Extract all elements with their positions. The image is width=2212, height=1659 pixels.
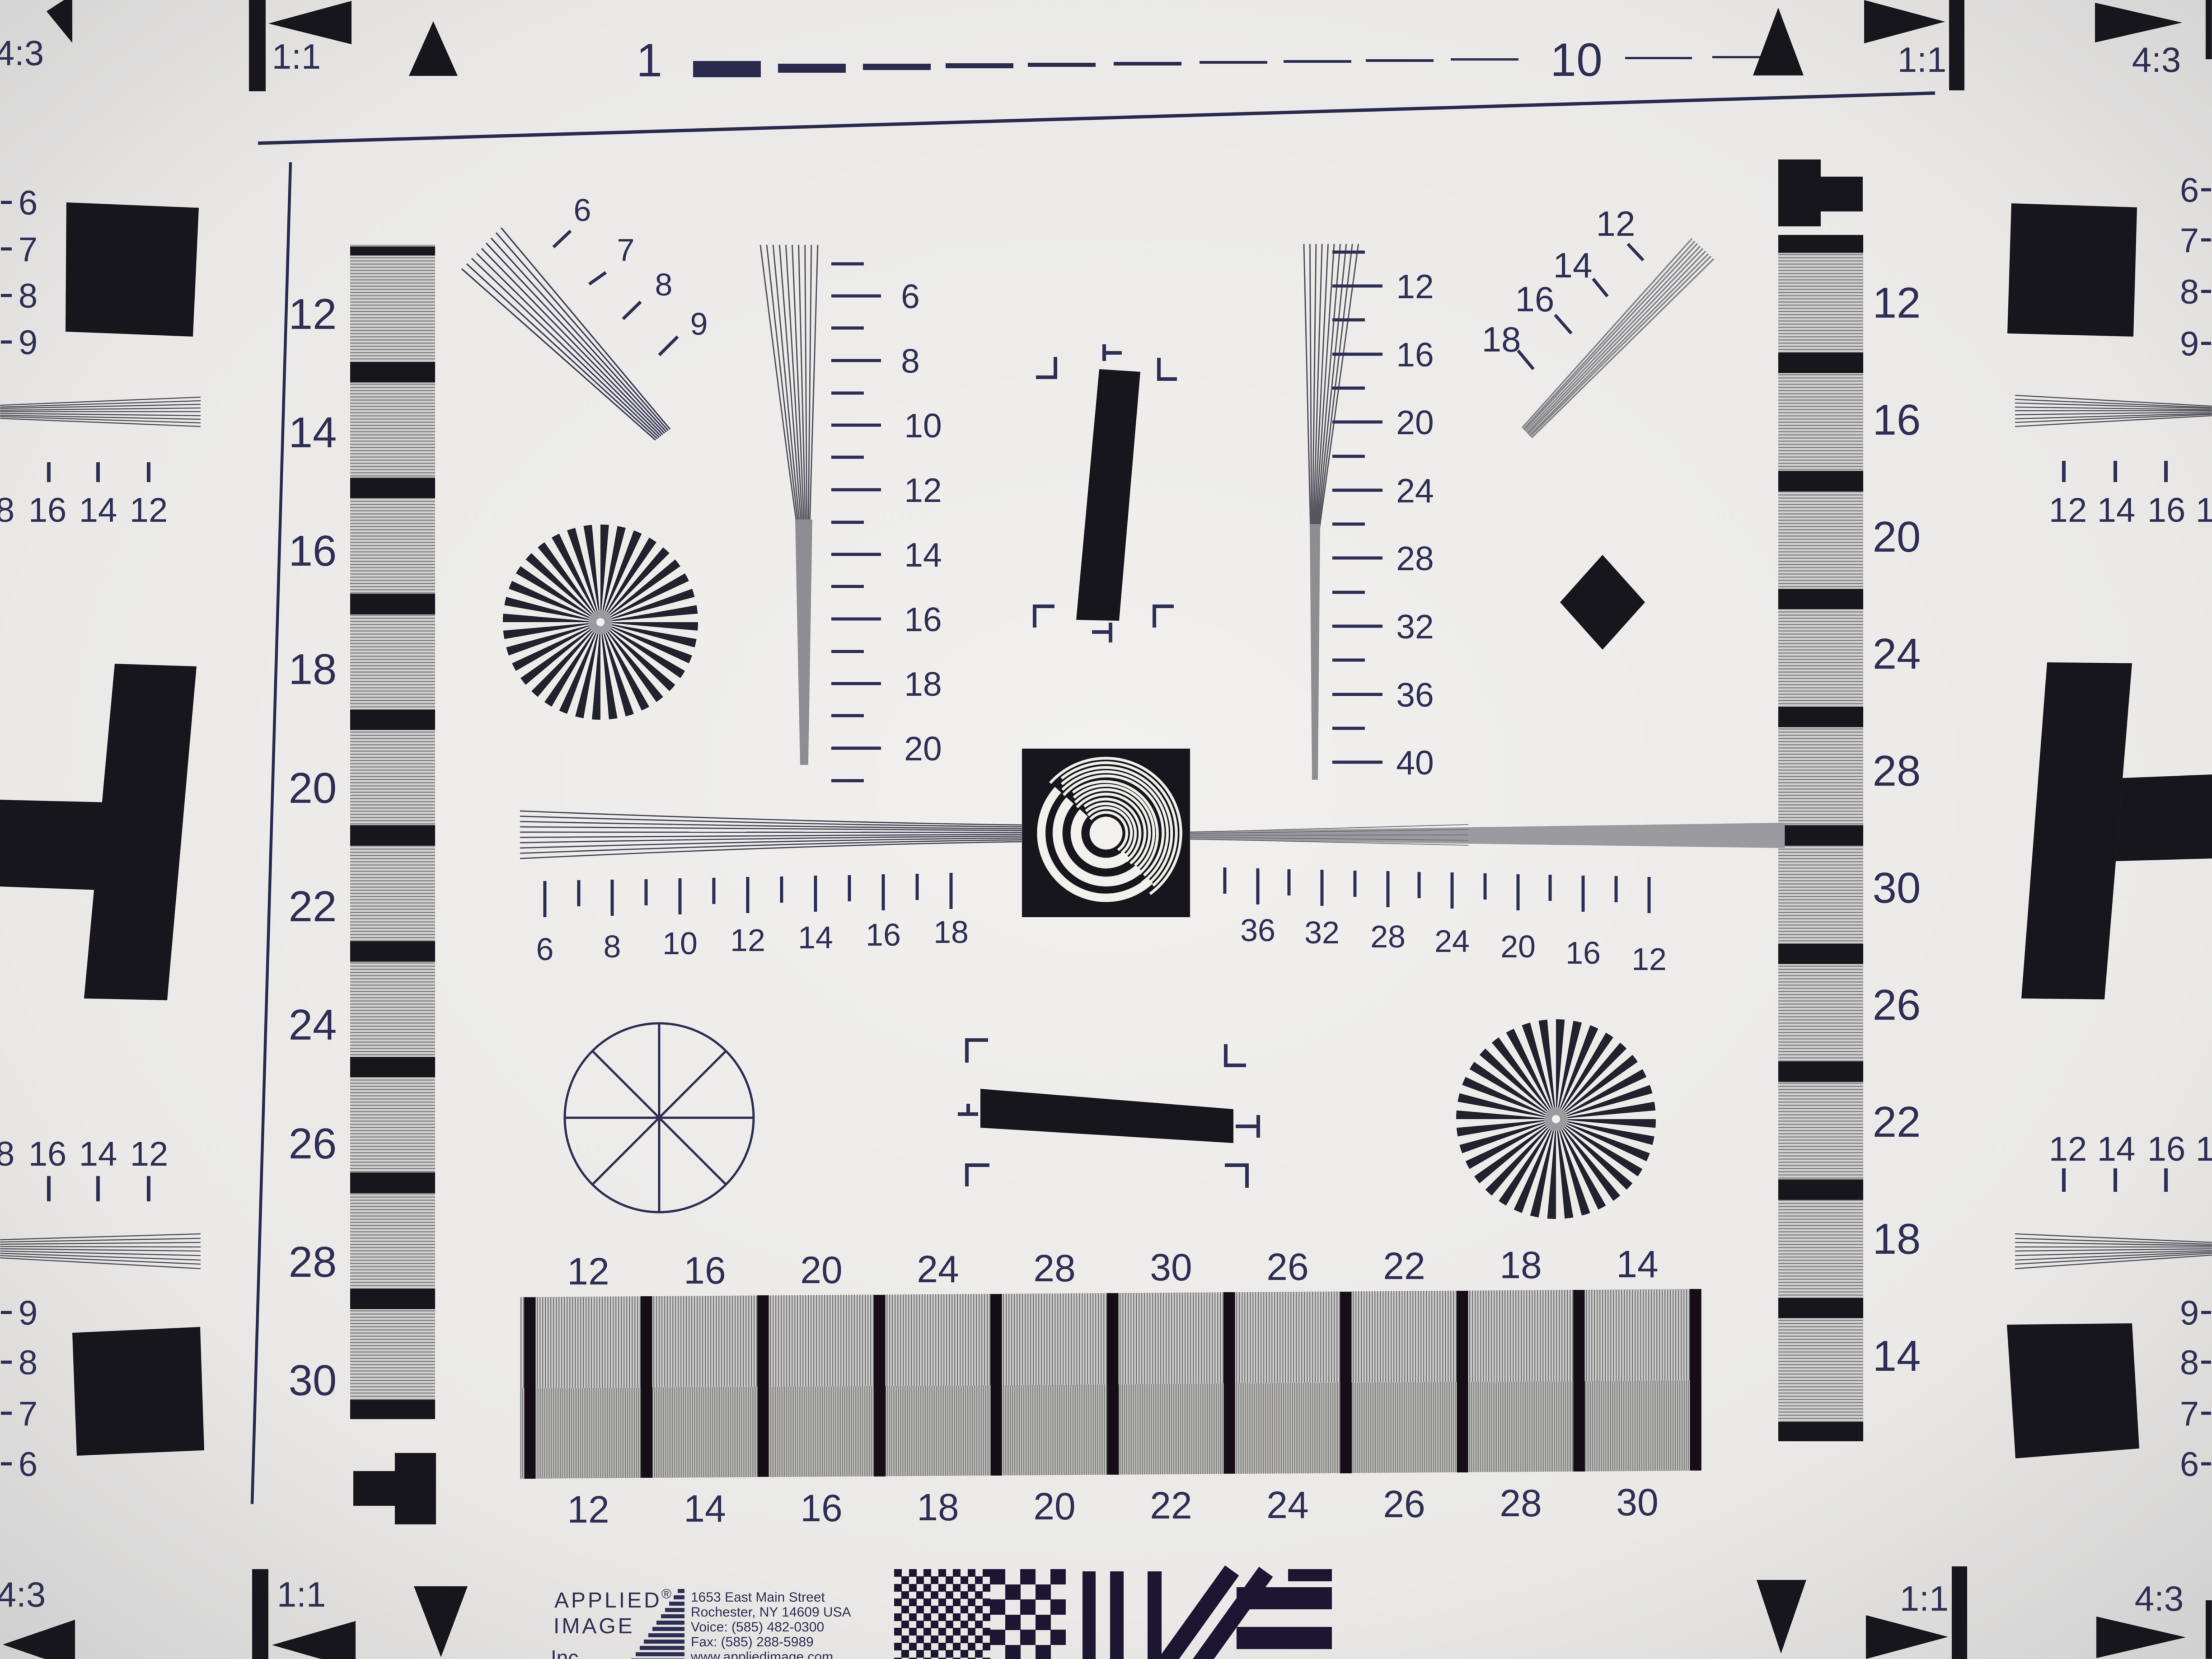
svg-text:36: 36 <box>1396 676 1434 714</box>
svg-text:12: 12 <box>1631 942 1667 977</box>
svg-text:16: 16 <box>1396 336 1434 374</box>
svg-text:22: 22 <box>1150 1484 1192 1527</box>
svg-text:24: 24 <box>1434 923 1470 959</box>
svg-text:28: 28 <box>289 1238 337 1286</box>
svg-text:10: 10 <box>904 407 942 445</box>
svg-text:4:3: 4:3 <box>2135 1579 2184 1618</box>
svg-text:Voice: (585) 482-0300: Voice: (585) 482-0300 <box>691 1620 824 1635</box>
svg-text:14: 14 <box>684 1487 726 1530</box>
svg-text:40: 40 <box>1396 744 1434 782</box>
svg-text:1:1: 1:1 <box>272 37 321 76</box>
svg-text:1653 East Main Street: 1653 East Main Street <box>691 1590 825 1605</box>
svg-text:Rochester, NY 14609 USA: Rochester, NY 14609 USA <box>691 1605 851 1620</box>
svg-text:24: 24 <box>1266 1484 1308 1526</box>
svg-text:16: 16 <box>289 527 337 575</box>
svg-text:18: 18 <box>2196 491 2212 530</box>
svg-text:16: 16 <box>2147 491 2186 530</box>
svg-text:18: 18 <box>0 491 14 530</box>
svg-text:16: 16 <box>28 1135 67 1173</box>
svg-text:14: 14 <box>1616 1243 1658 1285</box>
svg-text:14: 14 <box>289 408 337 457</box>
svg-text:8: 8 <box>2180 1344 2199 1382</box>
svg-text:18: 18 <box>1500 1244 1542 1286</box>
svg-text:9: 9 <box>2180 325 2199 363</box>
svg-text:12: 12 <box>130 491 168 530</box>
svg-text:9: 9 <box>690 306 708 342</box>
svg-text:32: 32 <box>1304 915 1340 950</box>
svg-text:6: 6 <box>901 277 920 315</box>
svg-text:24: 24 <box>1396 472 1434 510</box>
svg-text:12: 12 <box>1396 267 1434 305</box>
svg-text:1:1: 1:1 <box>277 1575 326 1614</box>
svg-text:10: 10 <box>1550 34 1603 86</box>
svg-text:12: 12 <box>1596 204 1636 244</box>
svg-text:7: 7 <box>2180 221 2199 260</box>
svg-text:7: 7 <box>19 230 37 269</box>
svg-text:20: 20 <box>1500 929 1536 964</box>
svg-text:12: 12 <box>730 923 765 958</box>
svg-text:4:3: 4:3 <box>0 1575 46 1614</box>
svg-text:Inc: Inc <box>551 1646 578 1659</box>
svg-text:20: 20 <box>289 764 337 812</box>
svg-text:18: 18 <box>904 665 942 703</box>
svg-text:18: 18 <box>289 645 337 694</box>
svg-text:9: 9 <box>19 323 37 362</box>
svg-text:26: 26 <box>1383 1483 1425 1525</box>
svg-text:16: 16 <box>1565 935 1601 970</box>
svg-text:8: 8 <box>604 929 621 964</box>
svg-text:12: 12 <box>289 290 337 338</box>
svg-text:6: 6 <box>536 932 554 967</box>
svg-text:12: 12 <box>2049 491 2087 530</box>
svg-text:28: 28 <box>1370 919 1406 954</box>
svg-text:4:3: 4:3 <box>0 33 44 73</box>
svg-text:30: 30 <box>1873 864 1921 912</box>
svg-text:10: 10 <box>662 926 698 961</box>
svg-text:16: 16 <box>28 491 67 530</box>
svg-text:22: 22 <box>289 882 337 931</box>
svg-text:7: 7 <box>19 1395 37 1433</box>
svg-text:16: 16 <box>2147 1130 2186 1168</box>
svg-text:9: 9 <box>2180 1294 2199 1332</box>
svg-text:20: 20 <box>800 1249 842 1291</box>
svg-text:18: 18 <box>2196 1130 2212 1168</box>
svg-text:16: 16 <box>1873 396 1921 444</box>
svg-text:20: 20 <box>1873 513 1921 561</box>
svg-text:12: 12 <box>130 1135 169 1173</box>
svg-text:8: 8 <box>19 277 37 315</box>
svg-text:16: 16 <box>866 917 901 952</box>
svg-text:1:1: 1:1 <box>1898 40 1946 80</box>
svg-text:22: 22 <box>1383 1245 1425 1287</box>
svg-text:14: 14 <box>798 920 833 955</box>
svg-text:32: 32 <box>1396 608 1434 646</box>
svg-text:18: 18 <box>0 1135 14 1173</box>
svg-text:1: 1 <box>636 34 662 87</box>
svg-text:APPLIED: APPLIED <box>554 1589 662 1612</box>
svg-text:30: 30 <box>1616 1481 1658 1523</box>
svg-text:14: 14 <box>2097 1130 2136 1168</box>
svg-text:www.appliedimage.com: www.appliedimage.com <box>690 1650 833 1659</box>
svg-text:14: 14 <box>79 491 117 530</box>
svg-text:6: 6 <box>19 1445 37 1484</box>
svg-text:18: 18 <box>917 1486 959 1528</box>
svg-text:14: 14 <box>904 536 942 574</box>
svg-text:7: 7 <box>2180 1395 2199 1433</box>
svg-text:6: 6 <box>19 184 37 222</box>
svg-text:8: 8 <box>2180 273 2199 311</box>
svg-text:12: 12 <box>567 1488 609 1531</box>
svg-text:28: 28 <box>1500 1482 1542 1524</box>
svg-text:20: 20 <box>1033 1485 1075 1528</box>
svg-text:9: 9 <box>19 1294 37 1332</box>
svg-text:20: 20 <box>1396 403 1434 441</box>
svg-text:®: ® <box>661 1587 671 1602</box>
svg-text:8: 8 <box>901 342 920 380</box>
svg-text:30: 30 <box>289 1356 337 1405</box>
svg-text:30: 30 <box>1150 1246 1192 1289</box>
svg-text:20: 20 <box>904 730 942 768</box>
svg-text:18: 18 <box>1873 1215 1921 1263</box>
svg-text:14: 14 <box>2097 491 2136 530</box>
svg-text:26: 26 <box>289 1120 337 1168</box>
svg-text:24: 24 <box>1873 630 1921 678</box>
svg-text:28: 28 <box>1396 539 1434 577</box>
svg-text:16: 16 <box>1515 279 1555 319</box>
svg-text:12: 12 <box>567 1250 609 1293</box>
svg-text:Fax: (585) 288-5989: Fax: (585) 288-5989 <box>691 1635 814 1650</box>
svg-text:26: 26 <box>1266 1246 1308 1288</box>
svg-text:14: 14 <box>1553 245 1593 285</box>
svg-text:6: 6 <box>2180 171 2199 210</box>
svg-text:18: 18 <box>933 914 969 950</box>
svg-text:12: 12 <box>904 471 942 509</box>
svg-text:26: 26 <box>1873 981 1921 1029</box>
svg-text:28: 28 <box>1033 1247 1075 1289</box>
svg-text:7: 7 <box>617 232 635 267</box>
svg-text:14: 14 <box>79 1135 117 1173</box>
svg-text:36: 36 <box>1240 913 1275 948</box>
svg-text:16: 16 <box>800 1487 842 1529</box>
svg-text:24: 24 <box>917 1248 959 1290</box>
svg-text:8: 8 <box>19 1344 37 1382</box>
svg-text:6: 6 <box>574 192 591 228</box>
svg-text:24: 24 <box>289 1001 337 1049</box>
svg-text:22: 22 <box>1873 1098 1921 1146</box>
svg-text:28: 28 <box>1873 747 1921 795</box>
svg-text:12: 12 <box>1873 279 1921 327</box>
svg-text:16: 16 <box>904 600 942 638</box>
svg-text:18: 18 <box>1482 319 1521 359</box>
svg-text:8: 8 <box>655 267 673 302</box>
svg-text:4:3: 4:3 <box>2132 40 2181 80</box>
svg-text:1:1: 1:1 <box>1900 1579 1949 1618</box>
svg-text:6: 6 <box>2180 1445 2199 1484</box>
svg-text:16: 16 <box>684 1249 726 1292</box>
svg-text:12: 12 <box>2049 1130 2087 1168</box>
svg-text:IMAGE: IMAGE <box>553 1614 635 1638</box>
svg-text:14: 14 <box>1873 1332 1921 1380</box>
